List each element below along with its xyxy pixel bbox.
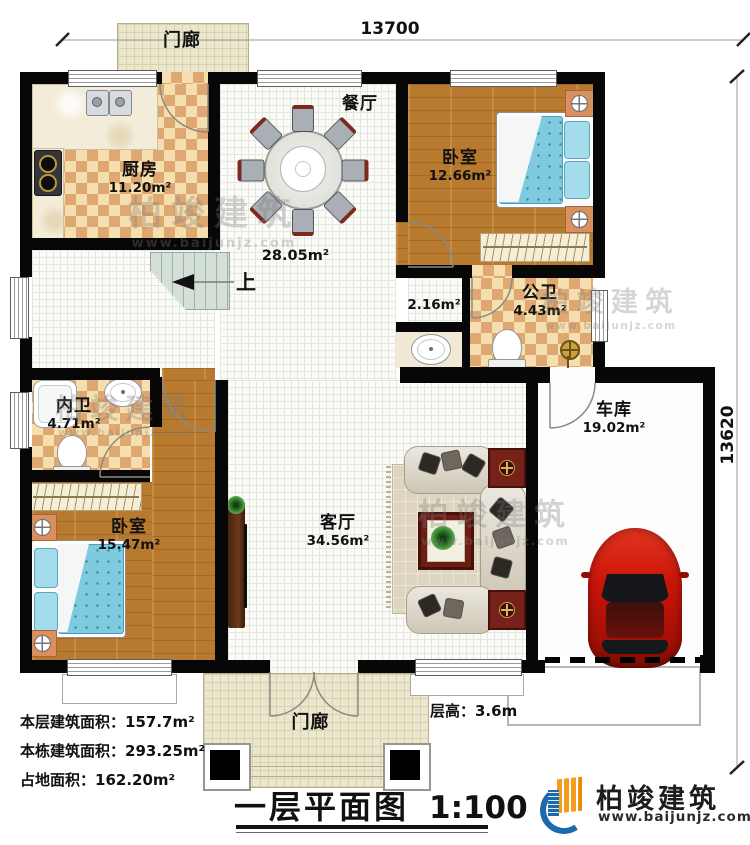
title-block: 一层平面图 1:100 bbox=[234, 782, 528, 828]
wardrobe-top bbox=[480, 233, 590, 262]
wall bbox=[396, 265, 472, 278]
room-area: 19.02m² bbox=[575, 421, 653, 437]
wall bbox=[520, 660, 545, 673]
brand-logo-icon bbox=[540, 776, 594, 832]
window-sill bbox=[62, 674, 177, 704]
wall bbox=[360, 72, 450, 84]
sofa-pillow bbox=[440, 449, 463, 472]
wall bbox=[526, 383, 538, 660]
room-name: 内卫 bbox=[36, 397, 112, 417]
dining-chair bbox=[342, 160, 369, 182]
stat-value: 162.20m² bbox=[95, 771, 175, 789]
room-name: 厨房 bbox=[85, 161, 195, 181]
bed-left-pillow bbox=[34, 548, 58, 588]
floor-height: 层高：3.6m bbox=[430, 700, 517, 721]
wall bbox=[215, 380, 228, 673]
window bbox=[450, 70, 557, 87]
car bbox=[588, 528, 682, 668]
room-label-bedroom-left: 卧室 15.47m² bbox=[88, 518, 170, 553]
wall bbox=[20, 470, 150, 482]
window bbox=[591, 290, 608, 342]
stat-label: 本栋建筑面积： bbox=[20, 742, 125, 760]
plan-scale: 1:100 bbox=[429, 790, 528, 826]
room-area: 28.05m² bbox=[248, 248, 343, 265]
stat-label: 本层建筑面积： bbox=[20, 713, 125, 731]
room-name: 卧室 bbox=[415, 149, 505, 169]
wall bbox=[396, 322, 464, 332]
cabinet-plant bbox=[227, 496, 245, 514]
room-area: 11.20m² bbox=[85, 181, 195, 197]
kitchen-sink-right bbox=[109, 90, 132, 116]
wall bbox=[208, 84, 220, 242]
toilet bbox=[57, 435, 87, 470]
wall bbox=[593, 72, 605, 278]
stat-line: 占地面积：162.20m² bbox=[20, 769, 205, 790]
window-sill bbox=[410, 674, 524, 696]
nightstand bbox=[28, 630, 57, 657]
room-area: 4.43m² bbox=[500, 304, 580, 320]
wall bbox=[208, 72, 257, 84]
garage-door-threshold bbox=[550, 367, 595, 383]
stat-label: 占地面积： bbox=[20, 771, 95, 789]
window bbox=[10, 392, 29, 449]
tv-cabinet bbox=[228, 502, 245, 628]
dining-area-value: 28.05m² bbox=[248, 248, 343, 265]
room-label-living: 客厅 34.56m² bbox=[295, 514, 381, 549]
room-label-public-bath: 公卫 4.43m² bbox=[500, 284, 580, 319]
room-area: 12.66m² bbox=[415, 169, 505, 185]
wall bbox=[593, 340, 605, 367]
room-label-dining: 餐厅 bbox=[315, 95, 405, 115]
stat-line: 本栋建筑面积：293.25m² bbox=[20, 740, 205, 761]
window bbox=[67, 659, 172, 676]
wall bbox=[462, 278, 470, 367]
wall bbox=[150, 377, 162, 427]
room-label-porch-top: 门廊 bbox=[132, 31, 232, 52]
room-label-kitchen: 厨房 11.20m² bbox=[85, 161, 195, 196]
room-area: 4.71m² bbox=[36, 417, 112, 433]
room-label-private-bath: 内卫 4.71m² bbox=[36, 397, 112, 432]
nightstand bbox=[565, 90, 594, 117]
side-table bbox=[488, 590, 526, 630]
room-name: 卧室 bbox=[88, 518, 170, 538]
room-area: 15.47m² bbox=[88, 538, 170, 554]
room-label-garage: 车库 19.02m² bbox=[575, 401, 653, 436]
stats-block: 本层建筑面积：157.7m² 本栋建筑面积：293.25m² 占地面积：162.… bbox=[20, 711, 205, 798]
wall bbox=[700, 655, 715, 673]
dining-table-center bbox=[295, 161, 311, 177]
wall bbox=[20, 337, 32, 392]
wall bbox=[20, 660, 67, 673]
room-area: 2.16m² bbox=[403, 298, 465, 314]
window bbox=[10, 277, 29, 339]
garage-rolling-door bbox=[545, 657, 700, 663]
wall bbox=[20, 368, 160, 380]
wall bbox=[20, 238, 220, 250]
floor-plan-canvas: 13700 13620 门廊 厨房 11.20m² 餐厅 28.05m² 卧室 … bbox=[0, 0, 750, 845]
plan-title: 一层平面图 bbox=[234, 782, 409, 828]
bed-left-pillow bbox=[34, 592, 58, 632]
nightstand bbox=[565, 206, 594, 233]
window bbox=[415, 659, 522, 676]
dining-chair bbox=[238, 160, 265, 182]
title-underline-thin bbox=[236, 832, 488, 833]
kitchen-sink-left bbox=[86, 90, 109, 116]
corridor-door-threshold bbox=[162, 368, 215, 380]
room-name: 客厅 bbox=[295, 514, 381, 534]
kitchen-door-threshold bbox=[160, 72, 208, 84]
window bbox=[68, 70, 157, 87]
window bbox=[257, 70, 362, 87]
wall bbox=[703, 383, 715, 655]
dimension-right: 13620 bbox=[718, 400, 738, 470]
room-label-bedroom-top: 卧室 12.66m² bbox=[415, 149, 505, 184]
stat-value: 157.7m² bbox=[125, 713, 195, 731]
table-plant bbox=[431, 526, 455, 550]
room-name: 门廊 bbox=[132, 31, 232, 52]
stat-value: 293.25m² bbox=[125, 742, 205, 760]
sofa-pillow bbox=[442, 597, 464, 619]
side-table bbox=[488, 448, 526, 488]
wardrobe-left bbox=[30, 483, 142, 511]
dining-chair bbox=[292, 105, 314, 132]
wall bbox=[358, 660, 415, 673]
porch-column bbox=[210, 750, 240, 780]
nightstand bbox=[28, 514, 57, 541]
wall bbox=[400, 367, 550, 383]
room-area: 34.56m² bbox=[295, 534, 381, 550]
dining-chair bbox=[292, 209, 314, 236]
floor-drain bbox=[560, 340, 580, 360]
hall-area-value: 2.16m² bbox=[403, 298, 465, 314]
tv bbox=[244, 524, 247, 608]
dimension-top: 13700 bbox=[340, 19, 440, 39]
room-label-porch-bottom: 门廊 bbox=[258, 713, 363, 734]
public-bath-door-threshold bbox=[472, 265, 512, 278]
room-name: 门廊 bbox=[258, 713, 363, 734]
bed-top-pillow bbox=[564, 161, 590, 199]
rug-fringe bbox=[386, 466, 391, 610]
hall-sink bbox=[411, 334, 451, 365]
wall bbox=[512, 265, 605, 278]
porch-door-threshold bbox=[270, 660, 358, 673]
stove bbox=[34, 150, 62, 196]
porch-column bbox=[390, 750, 420, 780]
brand-site: www.baijunjz.com bbox=[598, 809, 750, 825]
room-name: 车库 bbox=[575, 401, 653, 421]
stairs-up-label: 上 bbox=[236, 266, 256, 295]
drain-pipe bbox=[567, 356, 569, 368]
room-name: 公卫 bbox=[500, 284, 580, 304]
bed-top-pillow bbox=[564, 121, 590, 159]
bedroom-top-door-threshold bbox=[396, 222, 408, 267]
driveway bbox=[507, 666, 701, 726]
title-underline bbox=[236, 825, 488, 829]
room-name: 餐厅 bbox=[315, 95, 405, 115]
wall bbox=[595, 367, 715, 383]
stat-line: 本层建筑面积：157.7m² bbox=[20, 711, 205, 732]
